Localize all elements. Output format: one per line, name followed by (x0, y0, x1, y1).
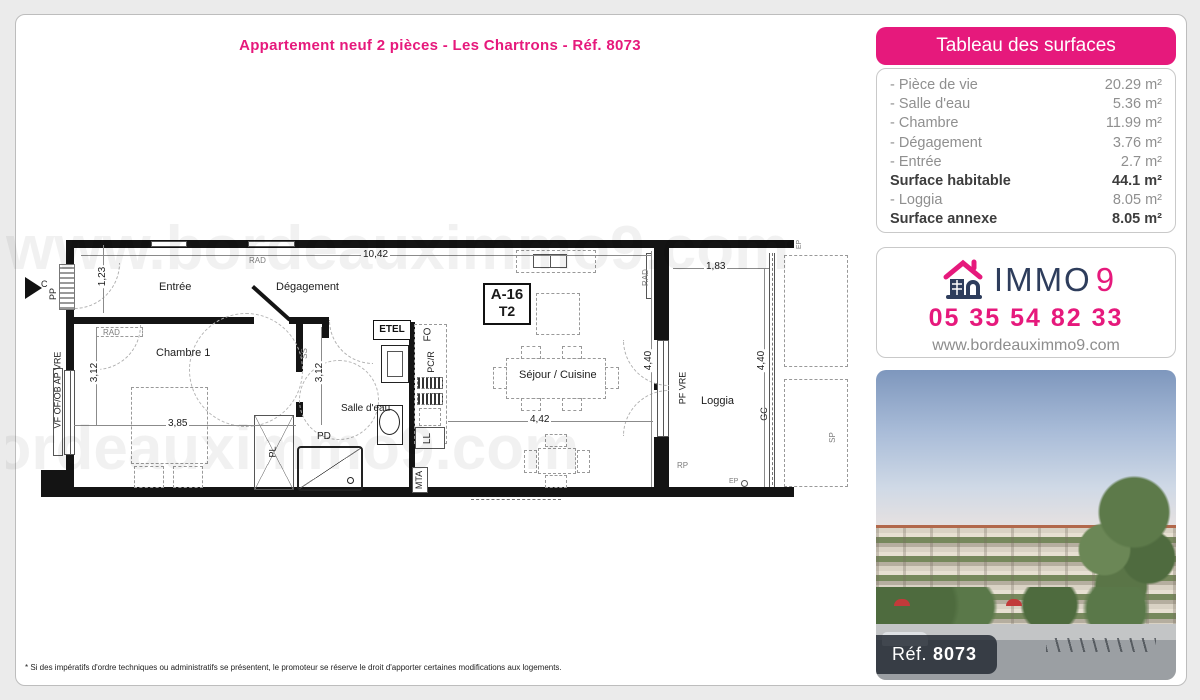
agency-phone: 05 35 54 82 33 (877, 304, 1175, 333)
table-row: - Loggia8.05 m² (890, 191, 1162, 210)
unit-label-box: A-16 T2 (483, 283, 531, 325)
brand-9: 9 (1096, 261, 1114, 299)
wall (66, 455, 74, 487)
surfaces-table-header: Tableau des surfaces (876, 27, 1176, 65)
row-value: 3.76 m² (1113, 134, 1162, 153)
window (64, 370, 75, 455)
rad-label: RAD (103, 328, 120, 337)
row-label: Surface habitable (890, 172, 1011, 191)
unit-type: T2 (485, 304, 529, 319)
table-row: - Dégagement3.76 m² (890, 134, 1162, 153)
dim-label: 1,83 (704, 261, 727, 272)
pl-label: PL (268, 446, 278, 457)
dim-label: 4,40 (643, 349, 654, 372)
small-table (538, 448, 576, 474)
wall-slot (248, 241, 295, 247)
dim-label: 1,23 (97, 265, 108, 288)
entrance-door-opening (59, 264, 75, 310)
row-value: 8.05 m² (1113, 191, 1162, 210)
chair (521, 346, 541, 359)
loggia-glazing (769, 253, 775, 487)
table-row: Surface habitable44.1 m² (890, 172, 1162, 191)
wall (322, 324, 329, 338)
counter-edge (446, 324, 447, 424)
ss-label: SS (300, 348, 309, 359)
surfaces-rows: - Pièce de vie20.29 m²- Salle d'eau5.36 … (890, 76, 1162, 230)
ll-label: LL (422, 433, 433, 444)
wall (289, 317, 329, 324)
ref-label: Réf. (892, 644, 927, 664)
door-arc (623, 390, 669, 436)
row-label: Surface annexe (890, 210, 997, 229)
unit-number: A-16 (485, 285, 529, 304)
room-label-loggia: Loggia (701, 395, 734, 407)
sp-label: SP (828, 432, 837, 443)
chair (577, 450, 590, 473)
table-row: - Chambre11.99 m² (890, 114, 1162, 133)
turning-circle (299, 360, 379, 440)
table-row: - Pièce de vie20.29 m² (890, 76, 1162, 95)
ep-label: EP (729, 478, 738, 485)
pcr-label: PC/R (426, 351, 436, 373)
surfaces-table: - Pièce de vie20.29 m²- Salle d'eau5.36 … (876, 68, 1176, 233)
row-value: 11.99 m² (1106, 114, 1162, 133)
shower-drain (347, 477, 354, 484)
wall (654, 437, 669, 487)
room-label-salle-eau: Salle d'eau (341, 403, 390, 414)
c-label: C (41, 279, 48, 289)
dim-label: 4,42 (528, 414, 551, 425)
ep-dot (787, 241, 794, 248)
kitchen-sink (533, 254, 567, 268)
ref-number: 8073 (933, 644, 977, 664)
table-row: - Salle d'eau5.36 m² (890, 95, 1162, 114)
row-value: 5.36 m² (1113, 95, 1162, 114)
dim-label: 10,42 (361, 249, 390, 260)
neighbor-zone (784, 379, 848, 487)
row-label: - Entrée (890, 153, 942, 172)
hob (417, 393, 443, 405)
page-title: Appartement neuf 2 pièces - Les Chartron… (16, 37, 864, 54)
door-arc (329, 320, 373, 364)
floor-plan: ETEL A-16 T2 10,42 1,23 3,12 3,85 3, (41, 237, 881, 522)
neighbor-zone (784, 255, 848, 367)
row-label: - Dégagement (890, 134, 982, 153)
row-value: 8.05 m² (1112, 210, 1162, 229)
dim-label: 4,40 (756, 349, 767, 372)
row-label: - Loggia (890, 191, 942, 210)
agency-website: www.bordeauximmo9.com (877, 337, 1175, 355)
hob (417, 377, 443, 389)
entrance-arrow-icon (25, 277, 42, 299)
chair (493, 367, 507, 389)
wall (654, 248, 669, 340)
chair (562, 346, 582, 359)
shower (297, 446, 363, 491)
hatch-line (471, 499, 561, 500)
wall (66, 310, 74, 370)
pf-vre-label: PF VRE (677, 372, 687, 405)
dim-label: 3,85 (166, 418, 189, 429)
gc-label: GC (759, 407, 769, 421)
chair (562, 398, 582, 411)
chair (605, 367, 619, 389)
building-photo: Réf.8073 (876, 370, 1176, 680)
pillow (134, 466, 164, 488)
table-row: Surface annexe8.05 m² (890, 210, 1162, 229)
room-label-entree: Entrée (159, 281, 191, 293)
mta-label: MTA (414, 471, 424, 489)
vanity-basin (387, 351, 403, 377)
room-label-chambre: Chambre 1 (156, 347, 210, 359)
row-value: 20.29 m² (1105, 76, 1162, 95)
immo9-logo-icon (938, 258, 990, 302)
row-value: 2.7 m² (1121, 153, 1162, 172)
chair (524, 450, 537, 473)
ep-mark (741, 480, 748, 487)
rad-label: RAD (641, 269, 650, 286)
chair (545, 475, 567, 488)
street-trees (876, 587, 1176, 627)
table-row: - Entrée2.7 m² (890, 153, 1162, 172)
wall (66, 240, 74, 264)
pd-label: PD (317, 431, 331, 442)
row-label: - Salle d'eau (890, 95, 970, 114)
row-value: 44.1 m² (1112, 172, 1162, 191)
pp-label: PP (48, 288, 58, 300)
vf-label: VF OF/OB AP VRE (52, 352, 62, 429)
row-label: - Chambre (890, 114, 959, 133)
rad-label: RAD (249, 256, 266, 265)
brand-immo: IMMO (994, 261, 1092, 299)
room-label-sejour: Séjour / Cuisine (519, 369, 597, 381)
room-label-degagement: Dégagement (276, 281, 339, 293)
dim-label: 3,12 (89, 361, 100, 384)
kitchen-island (536, 293, 580, 335)
ref-badge: Réf.8073 (876, 635, 997, 674)
chair (545, 434, 567, 447)
dim-label: 3,12 (314, 361, 325, 384)
turning-circle (189, 313, 303, 427)
appliance (419, 408, 441, 426)
pillow (173, 466, 203, 488)
fo-label: FO (422, 328, 433, 342)
wall-slot (151, 241, 187, 247)
agency-card: IMMO9 05 35 54 82 33 www.bordeauximmo9.c… (876, 247, 1176, 358)
flyer-page: Appartement neuf 2 pièces - Les Chartron… (15, 14, 1187, 686)
dim-line (764, 268, 765, 487)
ep-label: EP (796, 240, 803, 249)
agency-brand: IMMO9 (877, 258, 1175, 302)
disclaimer: * Si des impératifs d'ordre techniques o… (25, 663, 562, 672)
rp-label: RP (677, 461, 688, 470)
etel-box: ETEL (373, 320, 411, 340)
bike-racks (1046, 638, 1156, 652)
row-label: - Pièce de vie (890, 76, 978, 95)
chair (521, 398, 541, 411)
